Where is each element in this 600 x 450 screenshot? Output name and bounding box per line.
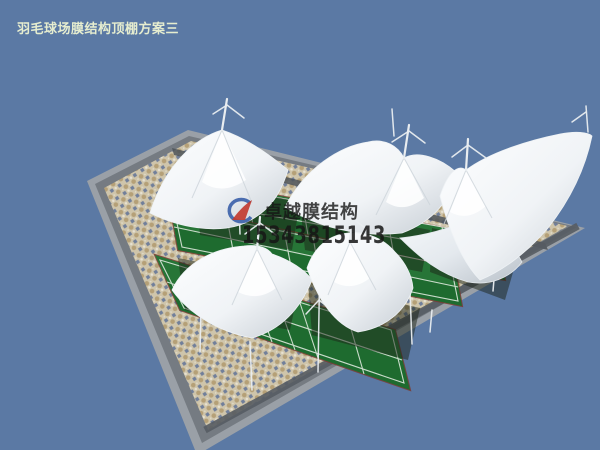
render-page: 卓越膜结构 15343815143 羽毛球场膜结构顶棚方案三 bbox=[0, 0, 600, 450]
page-title: 羽毛球场膜结构顶棚方案三 bbox=[17, 18, 179, 37]
scene-svg bbox=[0, 0, 600, 450]
